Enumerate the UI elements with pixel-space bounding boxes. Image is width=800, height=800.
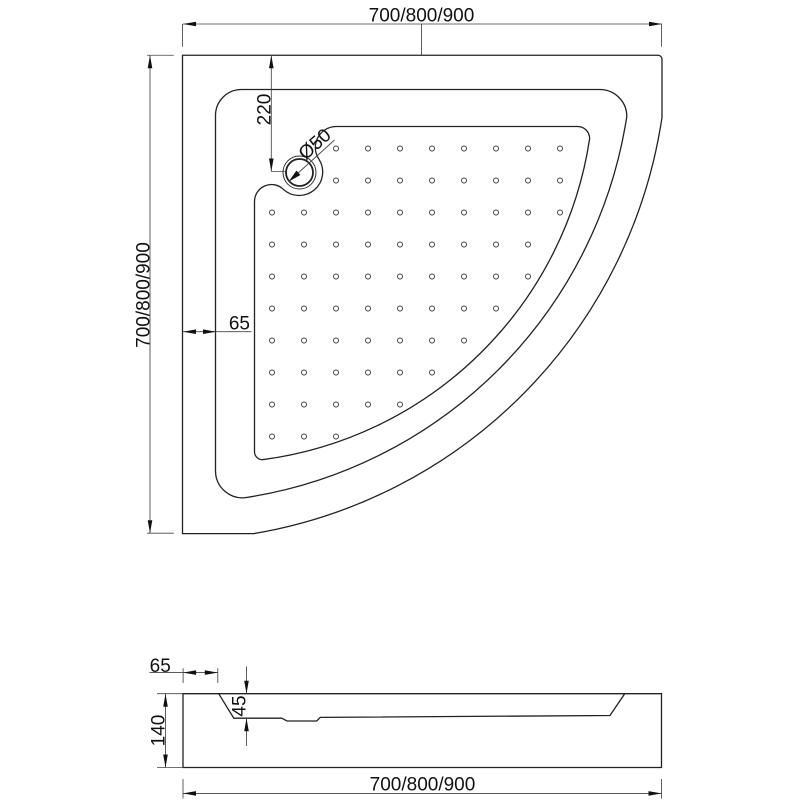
svg-text:65: 65 (150, 656, 171, 677)
svg-text:700/800/900: 700/800/900 (369, 5, 475, 26)
svg-text:65: 65 (229, 314, 250, 335)
svg-text:140: 140 (148, 715, 169, 747)
svg-text:220: 220 (254, 94, 275, 126)
svg-text:700/800/900: 700/800/900 (370, 774, 476, 795)
svg-text:700/800/900: 700/800/900 (133, 242, 154, 348)
svg-text:45: 45 (230, 695, 251, 716)
